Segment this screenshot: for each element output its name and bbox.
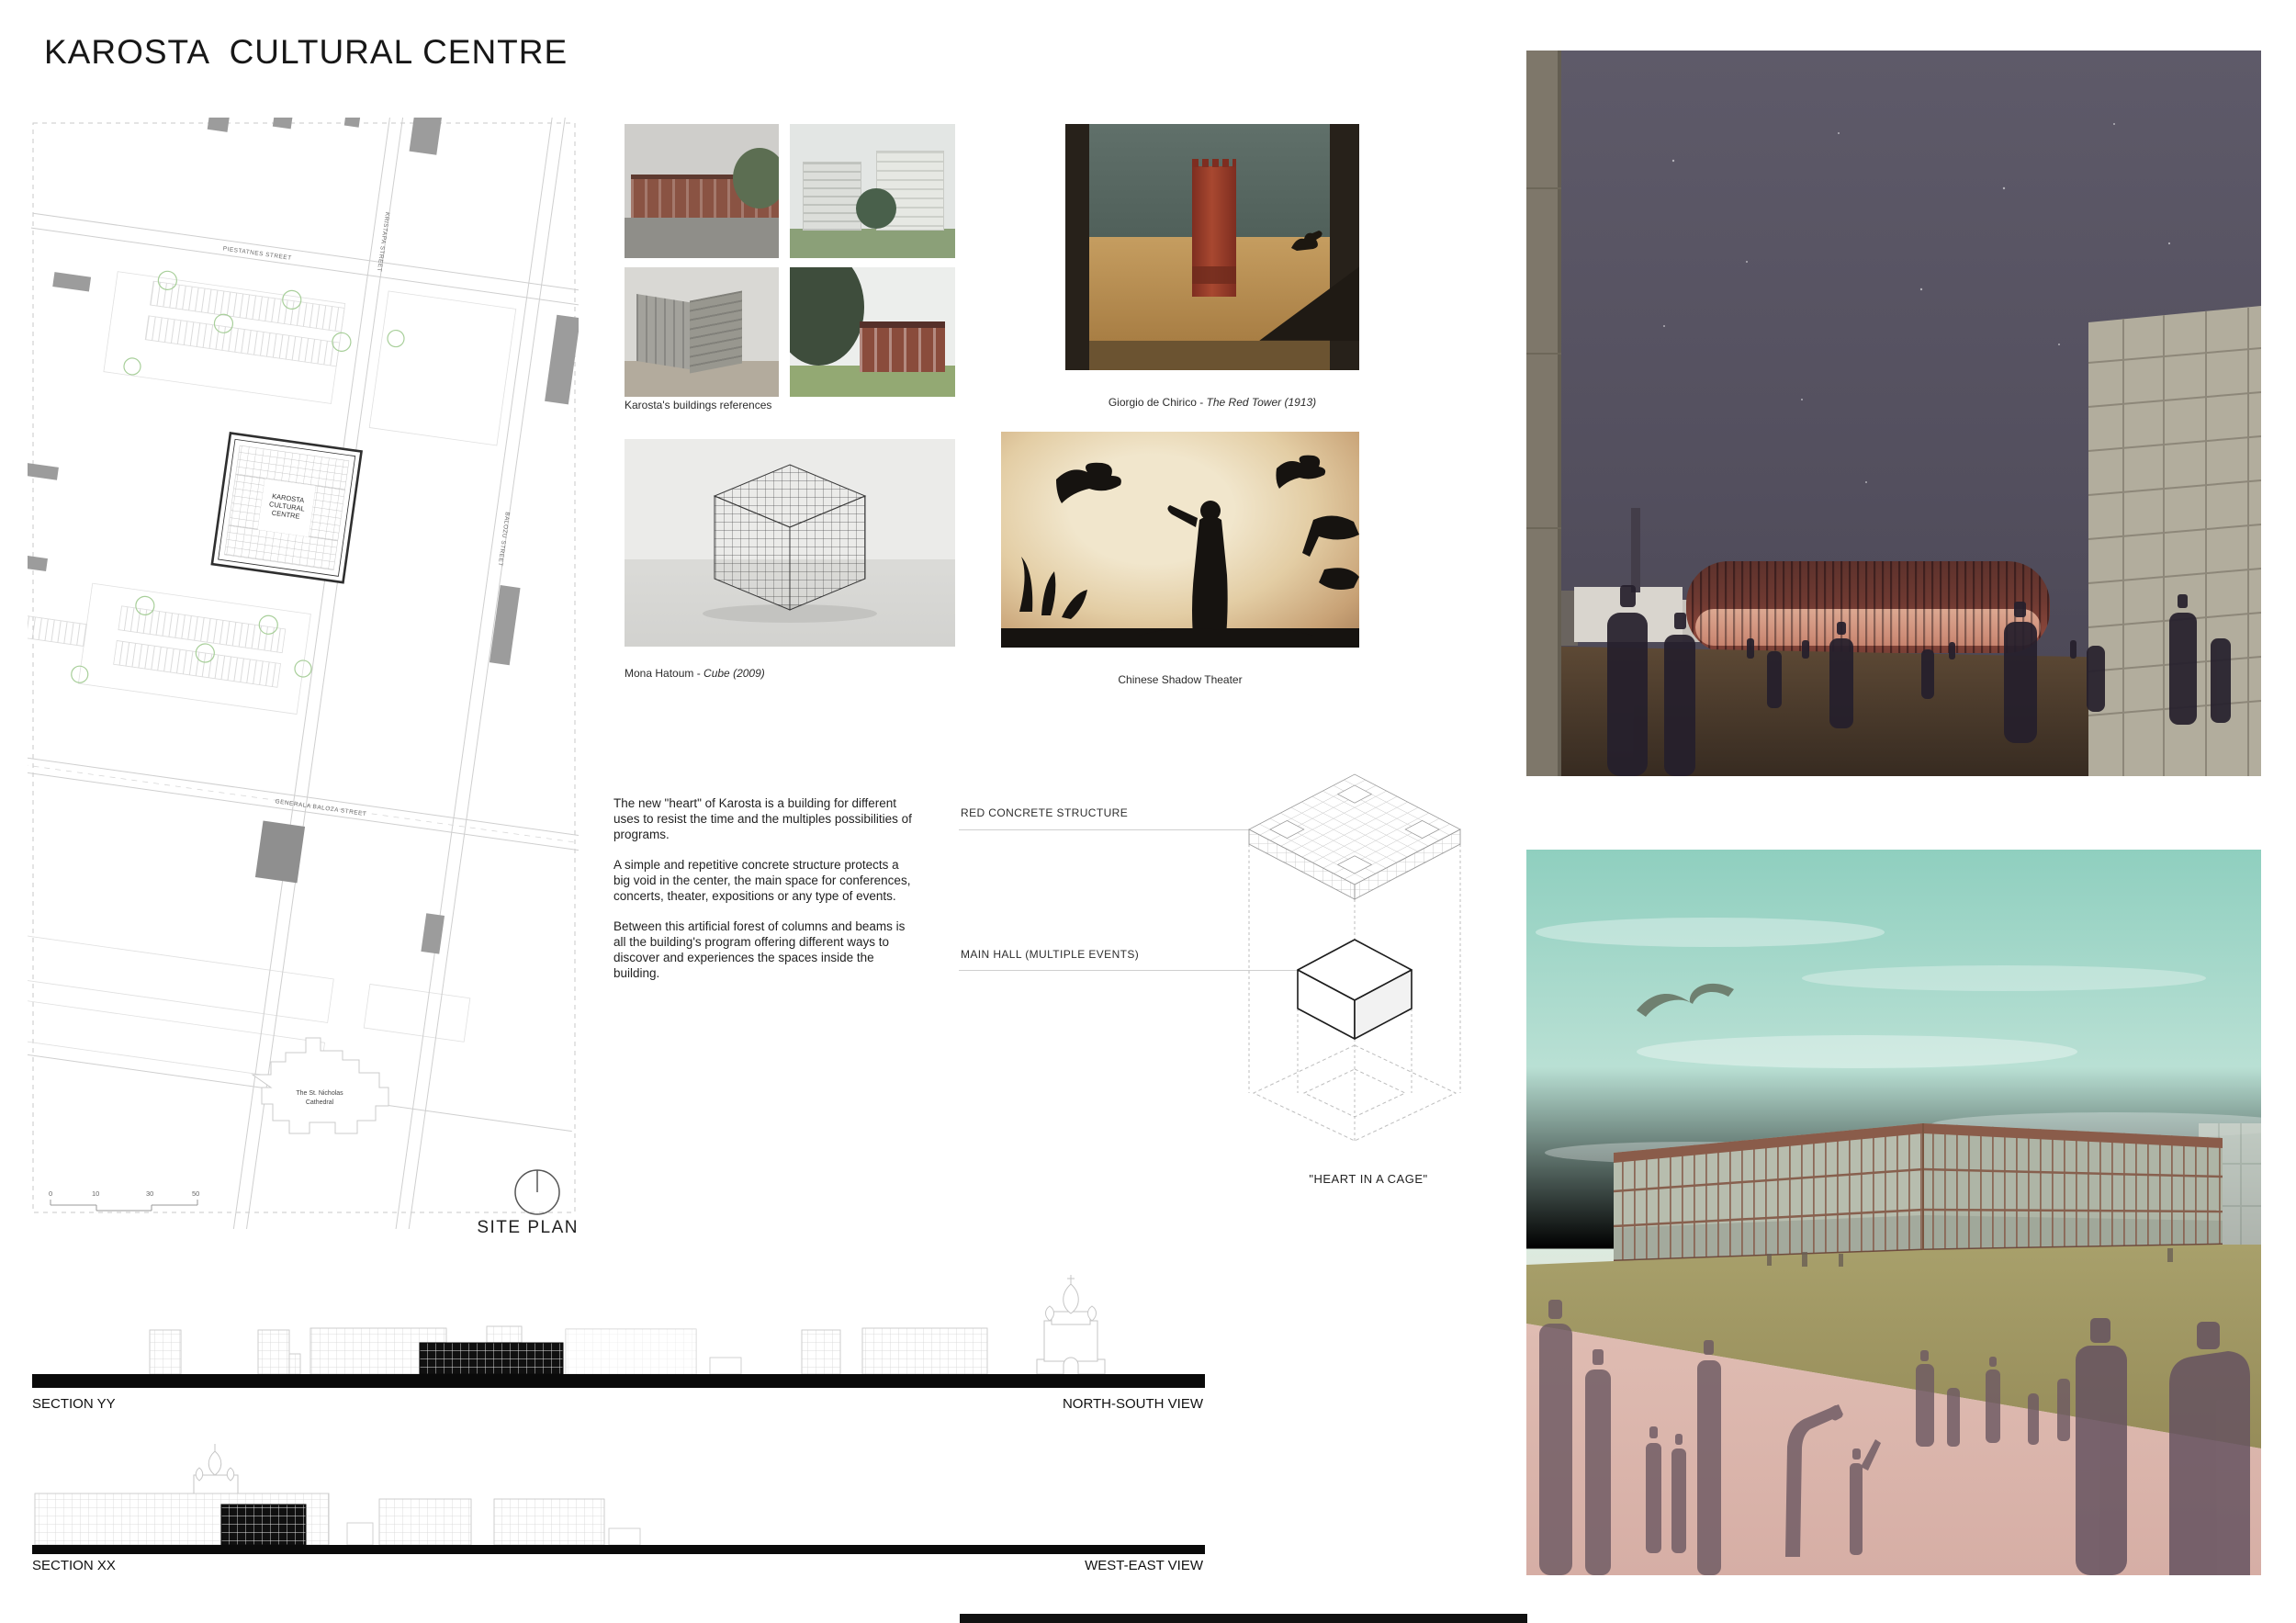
reference-photo-manor: [790, 267, 955, 397]
hatoum-caption-work: Cube (2009): [703, 667, 765, 680]
street-label-mid-vertical: BALOZU STREET: [497, 512, 511, 567]
horse-statue-silhouette: [1288, 222, 1324, 252]
cultural-centre-footprint: KAROSTA CULTURAL CENTRE: [212, 433, 362, 582]
site-plan-boundary: [33, 123, 575, 1212]
section-xx-ground-band: [32, 1545, 1205, 1554]
scale-tick-30: 30: [146, 1189, 153, 1198]
chirico-caption-artist: Giorgio de Chirico -: [1109, 396, 1207, 409]
section-xx-drawing: [32, 1444, 1205, 1554]
street-label-main: GENERALA BALOZA STREET: [275, 798, 367, 817]
bottom-crop-bar: [960, 1614, 1527, 1623]
wire-cube-sculpture: [625, 439, 955, 647]
section-xx-cathedral: [194, 1444, 238, 1495]
hatoum-caption: Mona Hatoum - Cube (2009): [625, 667, 765, 680]
section-yy-label: SECTION YY: [32, 1396, 116, 1412]
scale-tick-0: 0: [49, 1189, 52, 1198]
section-yy-view-label: NORTH-SOUTH VIEW: [951, 1396, 1203, 1412]
reference-photo-white-blocks: [790, 124, 955, 258]
section-xx-centre-building: [221, 1505, 306, 1545]
cathedral-label-line1: The St. Nicholas: [296, 1090, 343, 1097]
foreground-pillar: [1526, 51, 1561, 776]
section-yy-centre-building: [420, 1343, 563, 1374]
site-plan-drawing: PIESTATNES STREET KRISTAPA STREET BALOZU…: [28, 118, 579, 1229]
render-day-view: [1526, 850, 2261, 1575]
cathedral-label-line2: Cathedral: [306, 1099, 334, 1106]
hatoum-caption-artist: Mona Hatoum -: [625, 667, 703, 680]
shadow-theater-photo: [1001, 432, 1359, 648]
presentation-board: KAROSTA CULTURAL CENTRE: [0, 0, 2296, 1623]
diagram-label-structure: RED CONCRETE STRUCTURE: [961, 806, 1128, 819]
section-yy-cathedral: [1037, 1275, 1105, 1374]
stars: [1526, 123, 2170, 483]
concept-paragraph-2: A simple and repetitive concrete structu…: [613, 857, 917, 904]
red-concrete-structure-slab: [1249, 774, 1460, 899]
section-xx-view-label: WEST-EAST VIEW: [951, 1558, 1203, 1573]
base-slab-dashed: [1254, 1045, 1456, 1141]
shadow-silhouettes: [1001, 456, 1359, 648]
concept-paragraph-3: Between this artificial forest of column…: [613, 919, 917, 981]
chirico-painting: [1065, 124, 1359, 370]
section-xx-label: SECTION XX: [32, 1558, 116, 1573]
render-night-view: [1526, 51, 2261, 776]
reference-photo-ruins: [625, 267, 779, 397]
scale-bar: [51, 1200, 197, 1211]
north-arrow-icon: [515, 1170, 559, 1214]
site-plan-title: SITE PLAN: [349, 1218, 579, 1238]
exploded-axonometric-diagram: [1231, 751, 1506, 1155]
chirico-caption-work: The Red Tower (1913): [1207, 396, 1317, 409]
diagram-label-hall: MAIN HALL (MULTIPLE EVENTS): [961, 948, 1139, 961]
concept-paragraph-1: The new "heart" of Karosta is a building…: [613, 795, 917, 842]
references-caption: Karosta's buildings references: [625, 399, 771, 411]
concept-text: The new "heart" of Karosta is a building…: [613, 795, 917, 996]
sections-drawing: [30, 1268, 1206, 1580]
page-title: KAROSTA CULTURAL CENTRE: [44, 33, 568, 72]
scale-tick-50: 50: [192, 1189, 199, 1198]
cathedral-footprint: The St. Nicholas Cathedral: [253, 1038, 388, 1133]
section-yy-drawing: [32, 1275, 1205, 1388]
cultural-centre-night: [1686, 561, 2050, 653]
leader-line-structure: [959, 829, 1249, 830]
section-yy-ground-band: [32, 1374, 1205, 1388]
scale-tick-10: 10: [92, 1189, 99, 1198]
hatoum-photo: [625, 439, 955, 647]
diagram-caption: "HEART IN A CAGE": [1231, 1172, 1506, 1186]
main-hall-box: [1298, 940, 1412, 1039]
reference-photo-brick-barracks: [625, 124, 779, 258]
chirico-caption: Giorgio de Chirico - The Red Tower (1913…: [1065, 396, 1359, 409]
chimney: [1631, 508, 1640, 592]
shadow-caption: Chinese Shadow Theater: [1001, 673, 1359, 686]
